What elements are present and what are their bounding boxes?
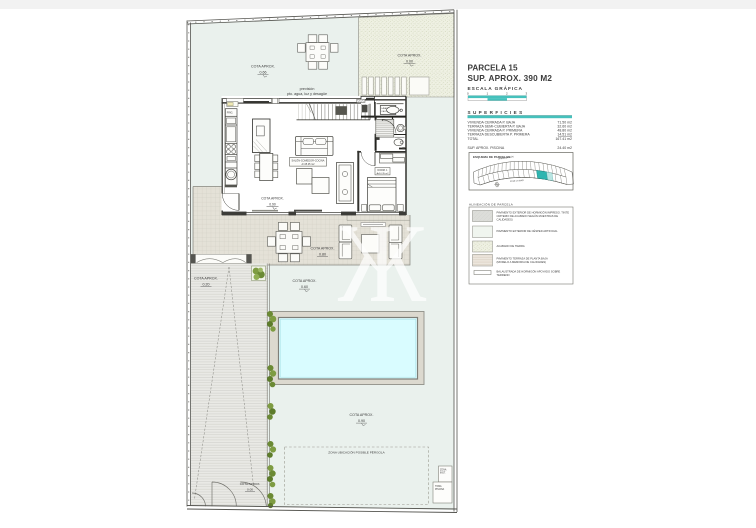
svg-text:0.00: 0.00: [247, 488, 253, 492]
svg-text:SUP. APROX. PISCINA: SUP. APROX. PISCINA: [468, 146, 505, 150]
svg-text:DORM. 1: DORM. 1: [378, 169, 389, 172]
svg-text:ESCALA GRÁFICA: ESCALA GRÁFICA: [468, 85, 523, 92]
svg-text:ACABADO DE TIERRA: ACABADO DE TIERRA: [497, 244, 525, 248]
svg-text:TOMA: TOMA: [435, 485, 442, 488]
svg-text:SUPERFICIES: SUPERFICIES: [468, 110, 525, 115]
svg-text:FRIG.: FRIG.: [227, 112, 234, 115]
svg-text:0.90: 0.90: [269, 203, 276, 207]
svg-text:PISCINA: PISCINA: [435, 488, 445, 491]
svg-text:14.51 m2: 14.51 m2: [557, 132, 572, 136]
svg-text:INST.: INST.: [440, 473, 446, 475]
svg-text:COTA APROX.: COTA APROX.: [293, 279, 317, 283]
svg-text:Ж: Ж: [338, 201, 427, 325]
svg-text:SUP. APROX. 390 M2: SUP. APROX. 390 M2: [468, 74, 553, 83]
svg-text:COTA APROX.: COTA APROX.: [311, 247, 335, 251]
svg-text:COTA APROX.: COTA APROX.: [398, 54, 422, 58]
svg-text:0.20: 0.20: [203, 283, 210, 287]
svg-text:TERRENO: TERRENO: [497, 273, 510, 277]
svg-text:CRITERIO DE ACABADO SEGÚN MUES: CRITERIO DE ACABADO SEGÚN MUESTRAS DE: [497, 214, 559, 218]
svg-text:COTA APROX.: COTA APROX.: [350, 413, 374, 417]
svg-text:A=10.35 m2: A=10.35 m2: [377, 172, 390, 175]
svg-text:ZONA: ZONA: [440, 469, 447, 472]
svg-text:0.80: 0.80: [319, 253, 326, 257]
svg-text:PAVIMENTO TERRAZA DE PLANTA BA: PAVIMENTO TERRAZA DE PLANTA BAJA: [497, 256, 548, 260]
svg-text:COTA APROX.: COTA APROX.: [240, 482, 261, 486]
svg-text:TERRAZA DESCUBIERTA P. PRIMERA: TERRAZA DESCUBIERTA P. PRIMERA: [468, 132, 531, 136]
svg-text:pto. agua, luz y desagüe: pto. agua, luz y desagüe: [287, 92, 327, 96]
svg-text:COTA APROX.: COTA APROX.: [251, 65, 275, 69]
svg-text:PARCELA 15: PARCELA 15: [468, 64, 518, 73]
svg-text:0.90: 0.90: [358, 419, 365, 423]
svg-text:COTA APROX.: COTA APROX.: [194, 277, 218, 281]
svg-text:167.41 m2: 167.41 m2: [555, 137, 572, 141]
svg-text:COTA APROX.: COTA APROX.: [261, 197, 284, 201]
svg-text:0.66: 0.66: [260, 71, 267, 75]
svg-text:24.40 m2: 24.40 m2: [557, 146, 572, 150]
svg-text:previsión: previsión: [300, 87, 315, 91]
svg-text:LAVAD.: LAVAD.: [381, 107, 389, 110]
svg-text:0.60: 0.60: [301, 285, 308, 289]
svg-text:(MODELO A MEMORIA DE CALIDADES: (MODELO A MEMORIA DE CALIDADES): [497, 260, 547, 264]
svg-text:A=45.05 m2: A=45.05 m2: [302, 163, 316, 166]
svg-text:TOTAL: TOTAL: [468, 137, 479, 141]
svg-text:ALINEACIÓN DE PARCELA: ALINEACIÓN DE PARCELA: [469, 201, 513, 206]
svg-text:0.00: 0.00: [406, 60, 413, 64]
svg-text:CALIDADES): CALIDADES): [497, 217, 513, 221]
svg-text:ZONA UBICACIÓN POSIBLE PÉRGOLA: ZONA UBICACIÓN POSIBLE PÉRGOLA: [328, 450, 385, 455]
svg-text:CALD.: CALD.: [381, 110, 388, 113]
